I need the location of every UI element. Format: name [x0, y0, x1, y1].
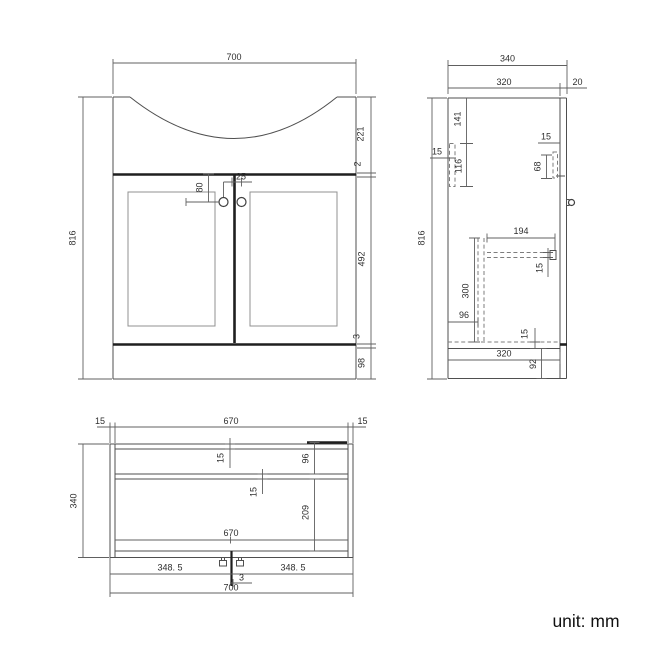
dim-side-support-offset: 96 [459, 310, 469, 320]
plan-knob-left [220, 558, 227, 567]
plan-knob-right [237, 558, 244, 567]
dim-plan-back-offset: 96 [301, 453, 311, 463]
dim-plan-shelf-thickness: 15 [249, 487, 259, 497]
plan-inner-lines [115, 444, 348, 558]
front-view: 700 816 221 2 492 3 98 80 25 [68, 52, 377, 379]
shelf-end-cap [550, 251, 556, 260]
dim-side-shelf-depth: 194 [513, 226, 528, 236]
dim-side-plinth-height: 92 [528, 359, 538, 369]
dim-plan-front-depth: 209 [301, 505, 311, 520]
right-door-knob [237, 198, 246, 207]
dim-side-door-thickness: 20 [572, 77, 582, 87]
unit-note: unit: mm [552, 611, 619, 631]
dim-side-door-plate-width: 15 [541, 132, 551, 142]
dim-front-door-height: 492 [357, 251, 367, 266]
dim-side-bottom-depth: 320 [496, 349, 511, 359]
dim-front-bottom-gap: 3 [352, 334, 362, 339]
side-view: 340 320 20 816 141 15 116 15 68 194 15 3… [417, 54, 588, 380]
dim-plan-right-panel: 15 [357, 416, 367, 426]
vanity-technical-drawing: 700 816 221 2 492 3 98 80 25 340 320 20 … [0, 0, 650, 650]
dim-side-door-plate-height: 68 [533, 161, 543, 171]
dim-plan-left-panel: 15 [95, 416, 105, 426]
shelf-support-hidden [478, 238, 484, 342]
basin-curve [130, 97, 337, 139]
dim-side-support-height: 300 [461, 283, 471, 298]
dim-plan-door-right: 348. 5 [280, 563, 305, 573]
dim-side-bottom-thickness: 15 [520, 329, 530, 339]
dim-plan-door-left: 348. 5 [157, 563, 182, 573]
dim-side-hinge-width: 15 [432, 147, 442, 157]
front-dim-lines [78, 59, 376, 379]
plan-outline [110, 444, 353, 558]
dim-side-overall-depth: 340 [500, 54, 515, 64]
dim-front-handle-spacing: 25 [236, 172, 246, 182]
dim-side-hinge-height: 116 [454, 159, 464, 173]
dim-front-handle-drop: 80 [195, 182, 205, 192]
plan-view: 15 670 15 340 15 96 15 209 670 348. 5 34… [69, 416, 368, 597]
dim-front-basin-height: 221 [356, 126, 366, 141]
dim-front-worktop-edge: 2 [353, 161, 363, 166]
left-door-panel [128, 192, 215, 326]
dim-plan-overall-width: 700 [223, 583, 238, 593]
dim-plan-center-gap: 3 [239, 573, 244, 583]
shelf-hidden [487, 253, 550, 258]
side-knob [569, 200, 575, 206]
door-hinge-plate [553, 152, 558, 178]
right-door-panel [250, 192, 337, 326]
dim-plan-back-panel: 15 [216, 453, 226, 463]
dim-side-hinge-offset: 141 [453, 111, 463, 126]
dim-plan-inner-width-back: 670 [223, 416, 238, 426]
dim-front-plinth-height: 98 [357, 358, 367, 368]
dim-front-overall-width: 700 [226, 52, 241, 62]
dim-side-shelf-thickness: 15 [535, 263, 545, 273]
side-dim-lines [427, 60, 587, 379]
dim-front-overall-height: 816 [68, 230, 78, 245]
left-door-knob [219, 198, 228, 207]
dim-side-carcass-depth: 320 [496, 77, 511, 87]
dim-plan-inner-width-front: 670 [223, 528, 238, 538]
dim-side-overall-height: 816 [417, 230, 427, 245]
dim-plan-overall-depth: 340 [69, 493, 79, 508]
